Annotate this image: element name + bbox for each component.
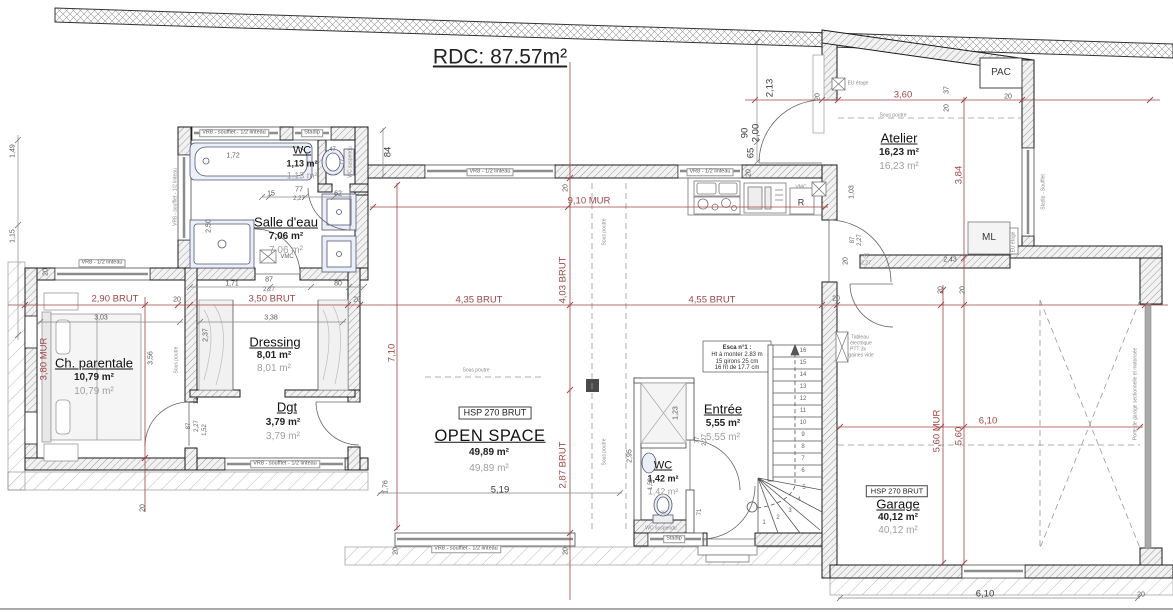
room-area-atelier: 16,23 m² — [879, 148, 919, 158]
stair-number: 1 — [762, 520, 765, 526]
wc-suspendu-label-1: WC suspendu — [349, 146, 354, 177]
dim-3-03: 3,03 — [94, 315, 108, 322]
dim-6-10: 6,10 — [976, 589, 995, 599]
stair-note-line1: Esca n°1 : — [723, 345, 752, 351]
dim-2-27: 2,27 — [293, 196, 305, 202]
window-label-sde-top: VR8 - soufflet - 1/2 linteau — [199, 129, 269, 137]
dim-2-27: 2,27 — [702, 434, 708, 446]
dim-12: 12 — [194, 398, 200, 405]
dim-77: 77 — [295, 187, 303, 194]
hsp-box-open-space: HSP 270 BRUT — [459, 407, 532, 420]
room-area-open-space: 49,89 m² — [469, 448, 509, 458]
dim-1-76: 1,76 — [383, 480, 390, 494]
tableau-label-4: gaines vide — [848, 354, 873, 359]
wc-suspendu-label-2: WC suspendu — [645, 527, 676, 532]
stair-number: 12 — [800, 396, 807, 402]
stair-number: 2 — [776, 515, 779, 521]
room-name-salle-eau: Salle d'eau — [254, 216, 318, 229]
stair-number: 7 — [801, 456, 804, 462]
dim-20: 20 — [353, 297, 361, 304]
room-area-wc1: 1,13 m² — [286, 160, 317, 169]
sous-poutre-label-5: Sous poutre — [463, 369, 490, 374]
dim-20: 20 — [843, 257, 850, 265]
sous-poutre-label-4: Sous poutre — [880, 114, 907, 119]
dim-87: 87 — [186, 423, 192, 430]
window-label-os-top1: VR8 - 1/2 linteau — [467, 168, 514, 176]
dim-37: 37 — [944, 86, 951, 94]
dim-20: 20 — [393, 547, 400, 555]
room-name-entree: Entrée — [704, 403, 742, 416]
dim-77: 77 — [695, 437, 701, 444]
window-label-dgt: VR8 - soufflet - 1/2 linteau — [250, 460, 320, 468]
dim-2-37: 2,37 — [203, 328, 210, 342]
dim-4-55-brut: 4,55 BRUT — [689, 295, 736, 305]
fridge-label: R — [798, 199, 805, 208]
dim-20: 20 — [938, 286, 945, 294]
room-name-open-space: OPEN SPACE — [434, 428, 545, 445]
room-name-dressing: Dressing — [249, 336, 300, 349]
sous-poutre-label-2: Sous poutre — [603, 219, 608, 246]
eu-etage-label-2: EU étage — [1012, 232, 1017, 253]
window-label-atelier: Stadip - Soufflet — [1042, 174, 1047, 210]
room-area2-ch-parentale: 10,79 m² — [74, 387, 113, 397]
dim-20: 20 — [960, 286, 967, 294]
stair-number: 8 — [801, 444, 804, 450]
sous-poutre-label-3: Sous poutre — [603, 439, 608, 466]
room-area2-wc1: 1,13 m² — [287, 172, 318, 181]
room-area-garage: 40,12 m² — [878, 513, 918, 523]
dim-87: 87 — [863, 255, 869, 260]
dim-62: 62 — [334, 191, 342, 198]
dim-20: 20 — [1004, 94, 1012, 101]
stair-number: 5 — [802, 485, 805, 491]
dim-3-38: 3,38 — [264, 315, 278, 322]
dim-5-60-mur: 5,60 MUR — [932, 410, 942, 453]
dim-2-90-brut: 2,90 BRUT — [92, 294, 139, 304]
floorplan-drawing — [0, 0, 1173, 612]
dim-90: 90 — [740, 128, 750, 139]
stair-number: 14 — [800, 372, 807, 378]
dim-1-23: 1,23 — [673, 406, 680, 420]
dim-20: 20 — [815, 93, 822, 101]
dim-5-60: 5,60 — [954, 427, 964, 446]
room-area-dgt: 3,79 m² — [266, 418, 300, 428]
dim-1-15: 1,15 — [10, 229, 17, 243]
stair-number: 3 — [788, 508, 791, 514]
vmc-label-salle-eau: VMC — [280, 254, 293, 260]
stair-note-line2: Ht à monter 2.83 m — [711, 352, 762, 358]
dim-2-00: 2,00 — [751, 124, 761, 143]
dim-1-71: 1,71 — [225, 281, 239, 288]
dim-2-95: 2,95 — [627, 449, 634, 463]
garage-door-label: Porte de garage sectionnelle et motorisé… — [1134, 348, 1139, 441]
dim-2-27: 2,27 — [263, 287, 275, 293]
dim-1-58: 1,58 — [648, 478, 654, 490]
room-name-ch-parentale: Ch. parentale — [55, 357, 133, 370]
stair-number: 13 — [800, 384, 807, 390]
dim-2-50: 2,50 — [206, 219, 213, 233]
room-area2-atelier: 16,23 m² — [879, 162, 918, 172]
floor-plan: RDC: 87.57m² WC 1,13 m² 1,13 m² Salle d'… — [0, 0, 1173, 612]
dim-2-27: 2,27 — [194, 420, 200, 432]
stair-number: 9 — [801, 432, 804, 438]
room-area2-garage: 40,12 m² — [878, 526, 917, 536]
dim-1-52: 1,52 — [202, 424, 208, 436]
dim-1-47: 1,47 — [324, 147, 336, 153]
dim-20: 20 — [140, 504, 147, 512]
room-name-atelier: Atelier — [881, 132, 918, 145]
dim-87: 87 — [265, 277, 273, 284]
stair-note-line4: 16 ht de 17.7 cm — [715, 365, 760, 371]
dim-6-10-red: 6,10 — [979, 416, 998, 426]
dim-2-87-brut: 2,87 BRUT — [558, 442, 568, 489]
dim-5-19: 5,19 — [491, 485, 510, 495]
stair-number: 4 — [797, 497, 800, 503]
dim-20: 20 — [563, 547, 570, 555]
dim-2-13: 2,13 — [765, 79, 775, 98]
dim-87: 87 — [850, 237, 856, 244]
dim-3-60: 3,60 — [894, 90, 913, 100]
room-area-salle-eau: 7,06 m² — [269, 232, 303, 242]
pac-unit-label: PAC — [991, 68, 1011, 78]
room-area-dressing: 8,01 m² — [257, 351, 291, 361]
room-name-wc2: WC — [654, 461, 672, 472]
dim-4-35-brut: 4,35 BRUT — [456, 295, 503, 305]
dim-15: 15 — [267, 191, 275, 198]
dim-77: 77 — [340, 159, 346, 166]
dim-7-10: 7,10 — [387, 344, 397, 363]
eu-etage-label-1: EU étage — [848, 82, 869, 87]
stair-number: 11 — [800, 408, 806, 414]
window-label-chp: VR8 - 1/2 linteau — [79, 259, 126, 267]
dim-90-toilet: 90 — [660, 512, 666, 517]
dim-3-80-mur: 3,80 MUR — [39, 338, 49, 381]
dim-1-49: 1,49 — [10, 144, 17, 158]
stair-number: 15 — [800, 360, 807, 366]
window-label-stadip-top: Stadip — [301, 129, 323, 137]
room-name-garage: Garage — [876, 498, 919, 511]
dim-20: 20 — [944, 104, 951, 112]
room-area2-dgt: 3,79 m² — [266, 432, 300, 442]
room-area2-dressing: 8,01 m² — [257, 364, 291, 374]
dim-3-84: 3,84 — [954, 166, 964, 185]
dim-80: 80 — [334, 281, 342, 288]
dim-20: 20 — [563, 184, 570, 192]
dim-9-10-mur: 9,10 MUR — [568, 196, 611, 206]
dim-2-27: 2,27 — [861, 262, 871, 267]
dim-3-50-brut: 3,50 BRUT — [249, 294, 296, 304]
room-area-ch-parentale: 10,79 m² — [74, 373, 114, 383]
dim-3-56: 3,56 — [148, 351, 155, 365]
room-area2-entree: 5,55 m² — [706, 433, 740, 443]
room-area2-open-space: 49,89 m² — [469, 464, 508, 474]
dim-71: 71 — [697, 509, 703, 516]
washing-machine-label: ML — [982, 233, 996, 243]
dim-20: 20 — [173, 297, 181, 304]
window-label-stadip-entree: Stadip — [663, 535, 685, 543]
dim-4-03-brut: 4,03 BRUT — [558, 257, 568, 304]
dim-2-43: 2,43 — [943, 257, 957, 264]
room-area-entree: 5,55 m² — [706, 419, 740, 429]
dim-2-27: 2,27 — [857, 234, 863, 246]
window-label-sde-left: VR8 - soufflet - 1/2 linteau — [174, 168, 179, 226]
window-label-os-top2: VR8 - 1/2 linteau — [687, 168, 734, 176]
room-name-wc1: WC — [293, 146, 311, 157]
stair-number: 16 — [800, 348, 807, 354]
hsp-box-garage: HSP 270 BRUT — [866, 485, 928, 497]
dim-1-03: 1,03 — [849, 185, 856, 199]
dim-20: 20 — [1137, 592, 1145, 599]
stair-number: 6 — [801, 468, 804, 474]
dim-20: 20 — [746, 169, 753, 177]
sous-poutre-label-1: Sous poutre — [175, 347, 180, 374]
vmc-label-kitchen: VMC — [795, 186, 806, 191]
dim-1-72: 1,72 — [226, 153, 240, 160]
dim-84: 84 — [383, 147, 393, 158]
plan-title: RDC: 87.57m² — [433, 47, 567, 68]
window-label-os-bottom: VR8 - soufflet - 1/2 linteau — [431, 545, 501, 553]
stair-number: 10 — [800, 420, 807, 426]
room-name-dgt: Dgt — [277, 401, 297, 414]
dim-20: 20 — [43, 268, 50, 276]
dim-20: 20 — [832, 296, 840, 303]
dim-65: 65 — [746, 148, 756, 159]
